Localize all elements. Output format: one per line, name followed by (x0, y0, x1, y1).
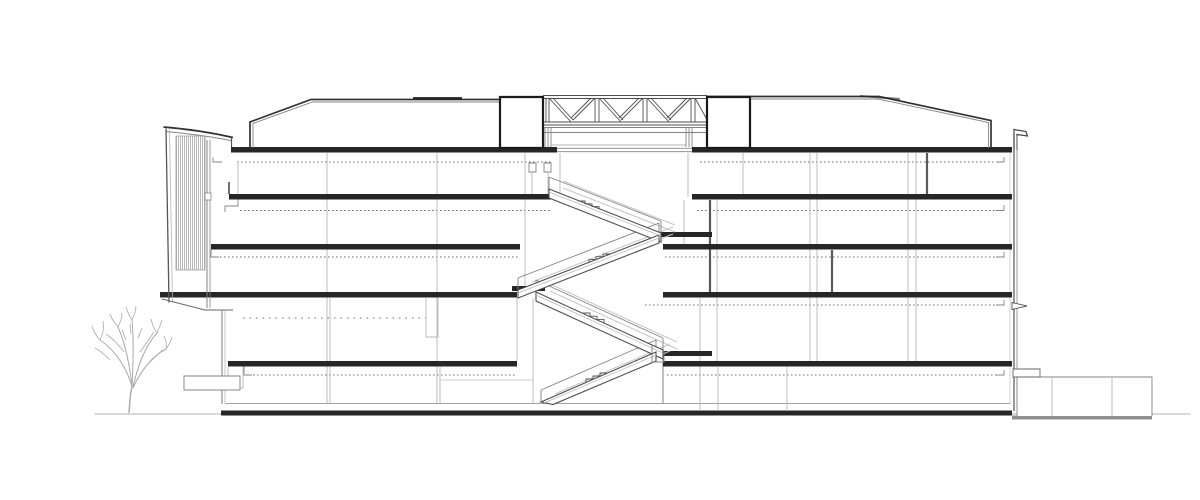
planter-block (184, 376, 240, 390)
ground-slab-cut (221, 411, 1012, 416)
floor3-slab-right (663, 244, 1012, 250)
floor2-slab-right (692, 194, 1012, 200)
monitor-cut-right (707, 97, 750, 148)
facade-bracket (1012, 303, 1027, 310)
tree-trunk (129, 387, 132, 413)
parapet-cap (1014, 130, 1028, 151)
stair-flight-1 (549, 189, 661, 242)
section-drawing-canvas (0, 0, 1200, 500)
mezzanine-slab-right (663, 361, 1012, 367)
tree (92, 306, 172, 413)
interior-bulkhead-notch (426, 298, 438, 337)
floor4-slab-right (663, 292, 1012, 298)
stair-flight-3 (536, 292, 663, 359)
stair-flight-2 (518, 235, 659, 298)
floor-slabs (160, 147, 1012, 367)
annex-ground-shadow (1012, 416, 1152, 420)
floor4-slab-left-canopy (160, 292, 517, 298)
monitor-cut-left (500, 97, 543, 148)
roof-truss (543, 96, 709, 152)
stair-landing-upper (657, 232, 712, 237)
floor3-slab-left (211, 244, 520, 250)
building-section-svg (0, 0, 1200, 500)
stair-steps (578, 201, 610, 382)
stair-landing-lower (658, 351, 712, 356)
monitor-cut-boxes (500, 97, 750, 148)
floor2-slab-left (229, 194, 557, 200)
annex-step-box (1013, 369, 1040, 377)
roof-monitor-left (250, 98, 541, 148)
hatched-facade-panel (176, 136, 205, 270)
atrium-guard-posts (529, 163, 551, 194)
mezzanine-slab-left (228, 361, 517, 367)
ceiling-dotted-lines (220, 162, 1003, 375)
low-annex (1013, 369, 1152, 416)
